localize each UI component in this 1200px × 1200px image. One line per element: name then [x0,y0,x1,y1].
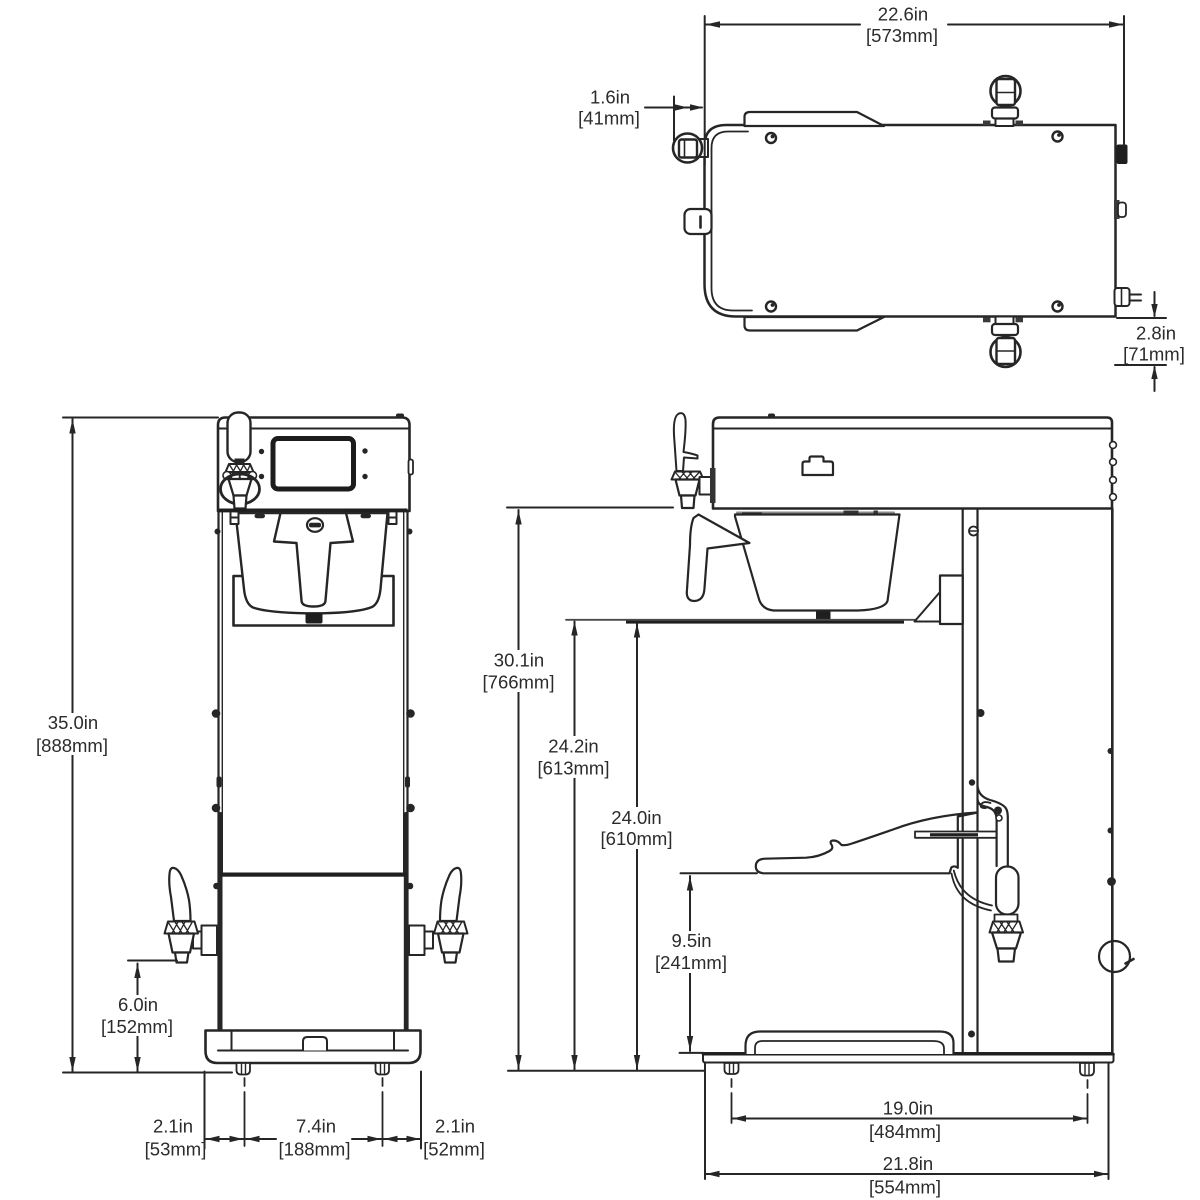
svg-text:1.6in: 1.6in [590,87,630,108]
svg-text:2.1in: 2.1in [153,1116,193,1137]
svg-text:22.6in: 22.6in [878,4,928,25]
svg-text:[188mm]: [188mm] [279,1139,351,1160]
svg-text:[484mm]: [484mm] [869,1121,941,1142]
svg-text:[53mm]: [53mm] [145,1139,207,1160]
svg-text:2.8in: 2.8in [1136,323,1176,344]
svg-text:[610mm]: [610mm] [601,828,673,849]
svg-text:6.0in: 6.0in [118,994,158,1015]
svg-text:24.0in: 24.0in [611,807,661,828]
svg-text:21.8in: 21.8in [883,1153,933,1174]
svg-text:30.1in: 30.1in [494,650,544,671]
svg-text:7.4in: 7.4in [296,1116,336,1137]
svg-text:24.2in: 24.2in [548,736,598,757]
svg-text:9.5in: 9.5in [671,930,711,951]
svg-text:[766mm]: [766mm] [483,672,555,693]
svg-text:[152mm]: [152mm] [101,1016,173,1037]
svg-text:[41mm]: [41mm] [578,108,640,129]
svg-text:[888mm]: [888mm] [36,735,108,756]
svg-text:[241mm]: [241mm] [655,952,727,973]
svg-text:35.0in: 35.0in [48,712,98,733]
svg-text:[554mm]: [554mm] [869,1177,941,1198]
svg-text:[52mm]: [52mm] [423,1139,485,1160]
svg-text:[573mm]: [573mm] [866,25,938,46]
svg-text:19.0in: 19.0in [883,1098,933,1119]
svg-text:[71mm]: [71mm] [1123,344,1185,365]
svg-text:2.1in: 2.1in [435,1116,475,1137]
svg-text:[613mm]: [613mm] [538,758,610,779]
